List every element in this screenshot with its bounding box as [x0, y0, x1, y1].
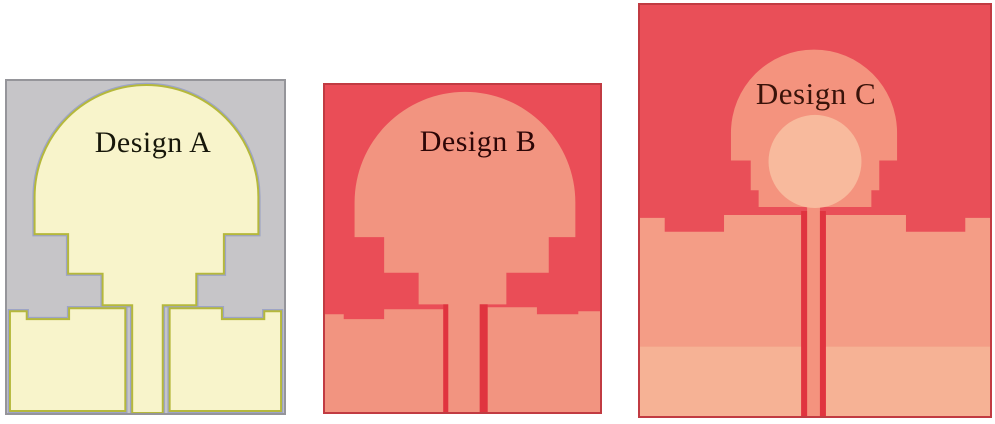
left-bottom-layer-band: [640, 347, 801, 416]
design-a-label: Design A: [95, 128, 212, 158]
left-feed-gap-line: [443, 304, 448, 412]
figure-antenna-designs: Design A Design B Design C: [0, 0, 995, 424]
design-c-label: Design C: [756, 78, 876, 109]
design-c-panel: Design C: [638, 3, 992, 418]
design-c-antenna-drawing: [640, 5, 990, 416]
left-feed-gap-line: [801, 211, 807, 416]
design-b-label: Design B: [420, 127, 537, 157]
left-ground-plane-shape: [325, 309, 443, 412]
right-feed-gap-line: [820, 211, 826, 416]
right-ground-plane-shape: [170, 308, 281, 411]
center-circular-patch: [769, 115, 862, 208]
right-ground-plane-shape: [488, 307, 600, 412]
left-ground-plane-shape: [10, 308, 125, 411]
right-bottom-layer-band: [826, 347, 990, 416]
design-a-panel: Design A: [5, 79, 286, 415]
right-feed-gap-line: [480, 304, 488, 412]
design-b-panel: Design B: [323, 83, 602, 414]
